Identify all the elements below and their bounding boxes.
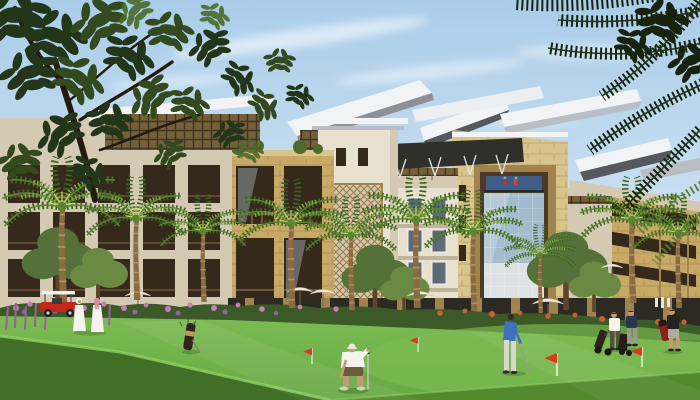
scene-canvas [0, 0, 700, 400]
fountain-posts [655, 297, 670, 308]
resort-golf-rendering [0, 0, 700, 400]
